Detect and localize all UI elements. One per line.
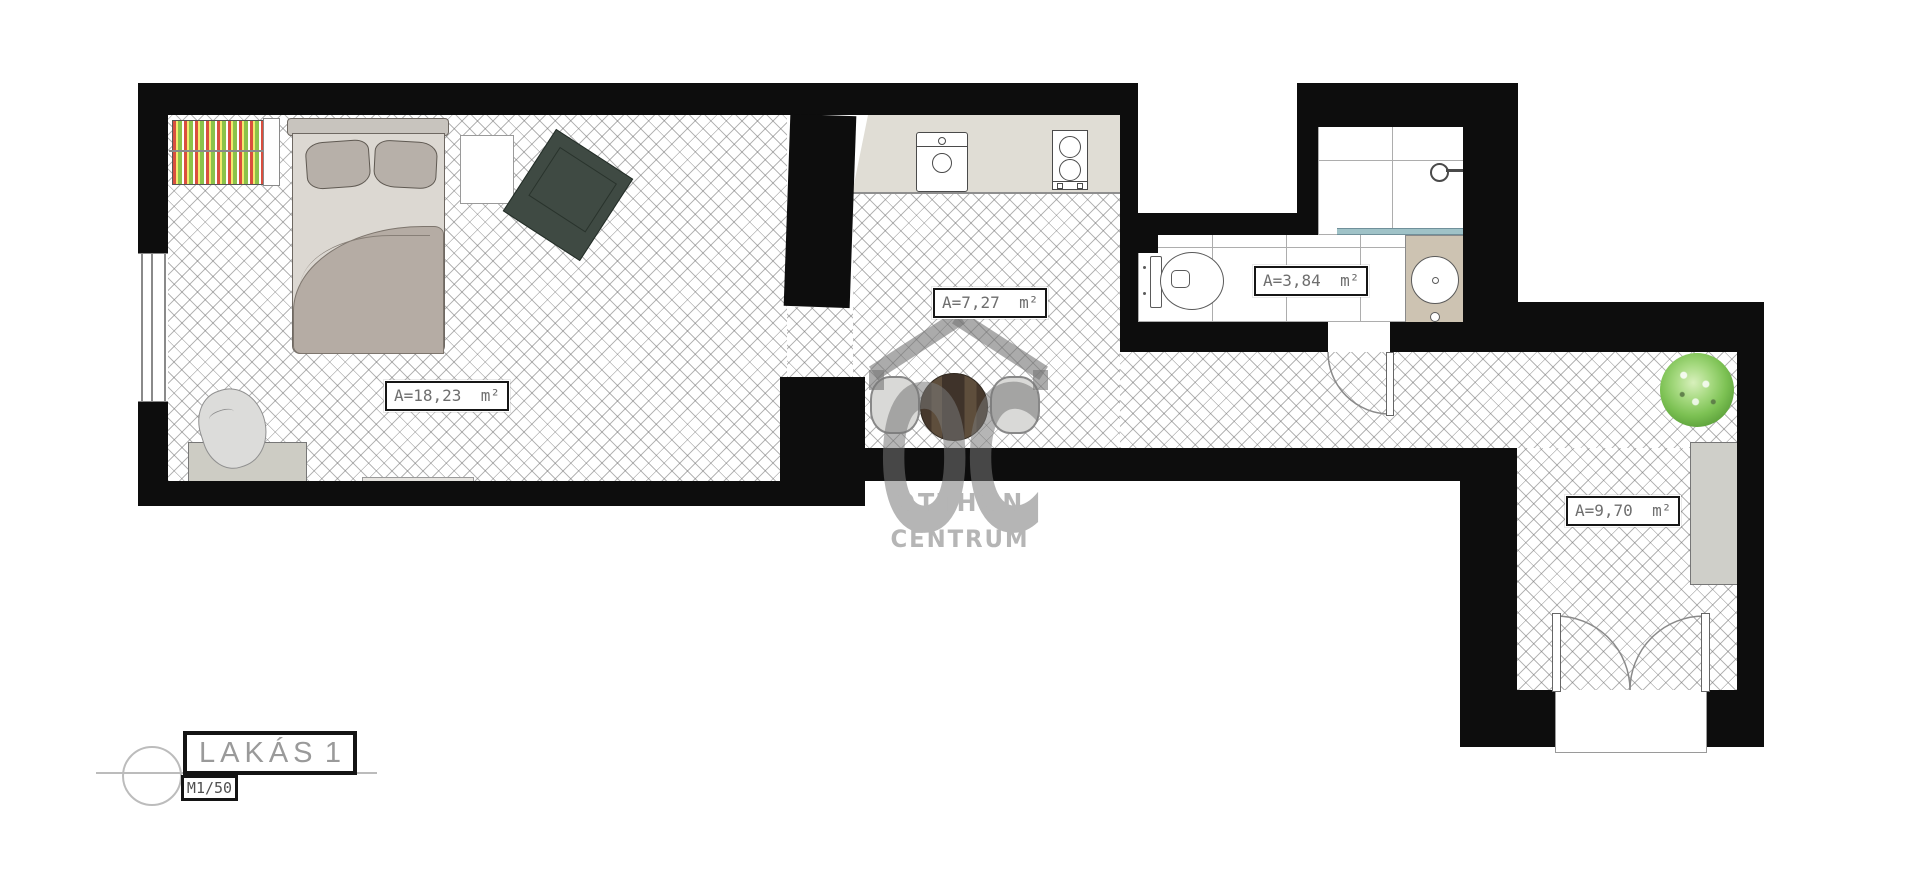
wall-hall-bottom-right — [1705, 690, 1764, 747]
wall-left-upper — [138, 83, 168, 253]
entry-door-arc-right — [1630, 616, 1704, 690]
wall-bathroom-left-upper — [1297, 83, 1318, 235]
sink-drain-dot — [938, 137, 946, 145]
plant — [1660, 353, 1734, 427]
radiator — [172, 120, 265, 185]
project-title: LAKÁS — [199, 737, 318, 770]
scale-label: M1/50 — [187, 779, 232, 797]
entry-door-opening — [1555, 690, 1707, 753]
area-label-bedroom: A=18,23 m² — [385, 381, 509, 411]
toilet-bowl — [1160, 252, 1224, 310]
armchair-seat — [528, 147, 617, 233]
title-axis-circle — [122, 746, 182, 806]
washbasin-tap-dot — [1430, 312, 1440, 322]
wall-niche-bottom — [1120, 213, 1318, 235]
toilet-flush — [1171, 270, 1190, 288]
title-box: LAKÁS 1 — [183, 731, 357, 775]
entry-door-arc-left — [1556, 616, 1630, 690]
wall-hall-bottom-left — [1460, 690, 1555, 747]
stove-knob-left — [1057, 183, 1063, 189]
pillow-right — [373, 139, 438, 189]
project-number: 1 — [325, 737, 341, 770]
sink-basin-circle — [932, 153, 952, 173]
toilet-dot-bottom — [1143, 292, 1146, 295]
scale-box: M1/50 — [181, 775, 238, 801]
burner-top — [1059, 136, 1081, 158]
bedroom-window — [138, 253, 168, 402]
stove-knob-right — [1077, 183, 1083, 189]
nightstand — [460, 135, 514, 204]
wall-bathroom-step — [1138, 235, 1158, 253]
wall-bathroom-bottom-left — [1138, 322, 1328, 352]
brand-line-1: OTTHON — [884, 490, 1036, 516]
stove — [1052, 130, 1088, 190]
wall-niche — [263, 118, 280, 186]
window-pane-line-3 — [164, 254, 166, 401]
bathroom-door-leaf — [1386, 352, 1394, 416]
floorplan-canvas: A=18,23 m² A=7,27 m² A=3,84 m² A=9,70 m²… — [0, 0, 1920, 880]
wall-hall-top — [1518, 302, 1764, 352]
brand-watermark: OTTHON CENTRUM — [880, 490, 1040, 552]
entry-door-leaf-left — [1552, 613, 1561, 692]
wall-bedroom-bottom — [138, 481, 788, 506]
stove-panel — [1053, 181, 1087, 182]
area-label-kitchen: A=7,27 m² — [933, 288, 1047, 318]
wall-bathroom-bottom-right — [1390, 322, 1518, 352]
wall-bathroom-left-lower — [1120, 235, 1138, 352]
pillow-left — [304, 139, 371, 190]
sink-divider-line — [917, 146, 967, 147]
shower-arm-icon — [1446, 169, 1463, 172]
wall-bathroom-right — [1463, 83, 1518, 352]
wall-divider-upper — [784, 114, 857, 308]
shower-head-icon — [1430, 163, 1449, 182]
window-pane-line-2 — [151, 254, 153, 401]
area-label-bathroom: A=3,84 m² — [1254, 266, 1368, 296]
burner-bottom — [1059, 159, 1081, 181]
brand-line-2: CENTRUM — [884, 527, 1036, 552]
window-pane-line-1 — [141, 254, 143, 401]
wall-right-outer — [1737, 302, 1764, 747]
wall-divider-stub — [780, 377, 865, 506]
desk-chair-line — [207, 406, 235, 424]
washbasin-drain — [1432, 277, 1439, 284]
shower-glass-partition — [1337, 228, 1463, 235]
radiator-axis-line — [169, 150, 268, 152]
kitchen-sink — [916, 132, 968, 192]
wardrobe — [1690, 442, 1739, 585]
wall-hall-left — [1460, 448, 1517, 690]
entry-door-leaf-right — [1701, 613, 1710, 692]
washbasin — [1411, 256, 1459, 304]
wall-top-main — [138, 83, 1138, 115]
bathroom-door-opening — [1328, 322, 1390, 352]
area-label-hall: A=9,70 m² — [1566, 496, 1680, 526]
corridor-floor — [1120, 352, 1737, 448]
bathroom-door-arc — [1328, 352, 1392, 418]
toilet-dot-top — [1143, 266, 1146, 269]
bedroom-kitchen-doorway-floor — [787, 307, 853, 377]
